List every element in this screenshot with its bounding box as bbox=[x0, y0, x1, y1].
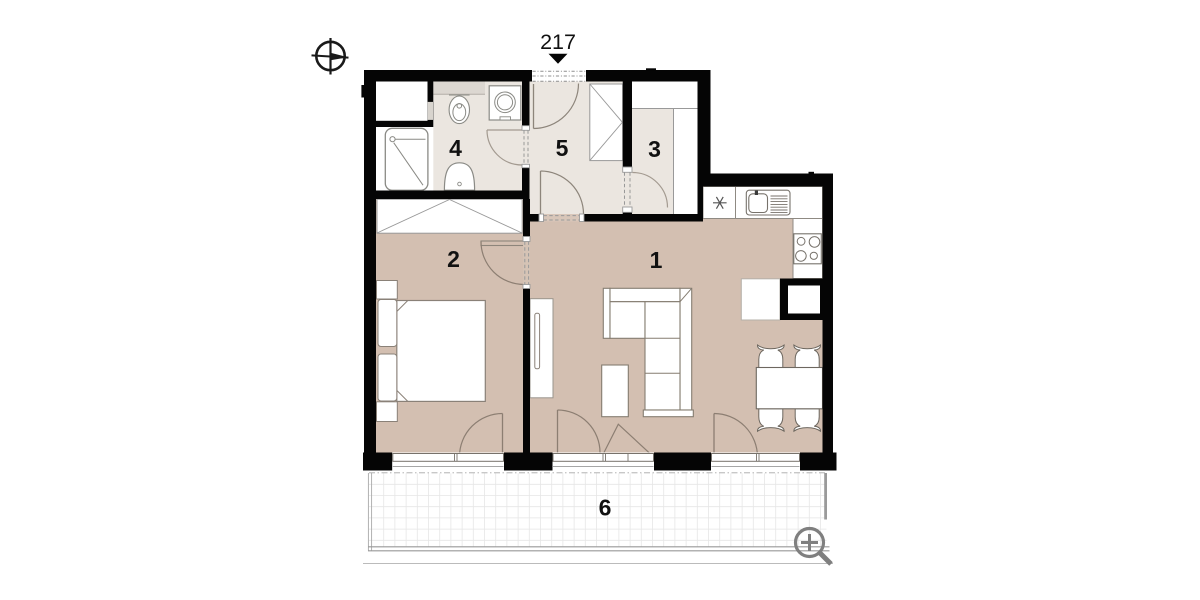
svg-text:6: 6 bbox=[599, 495, 612, 521]
svg-text:2: 2 bbox=[447, 246, 460, 272]
svg-text:1: 1 bbox=[650, 247, 663, 273]
svg-text:5: 5 bbox=[556, 135, 569, 161]
svg-text:4: 4 bbox=[449, 135, 462, 161]
svg-text:3: 3 bbox=[648, 136, 661, 162]
svg-text:217: 217 bbox=[540, 30, 576, 54]
